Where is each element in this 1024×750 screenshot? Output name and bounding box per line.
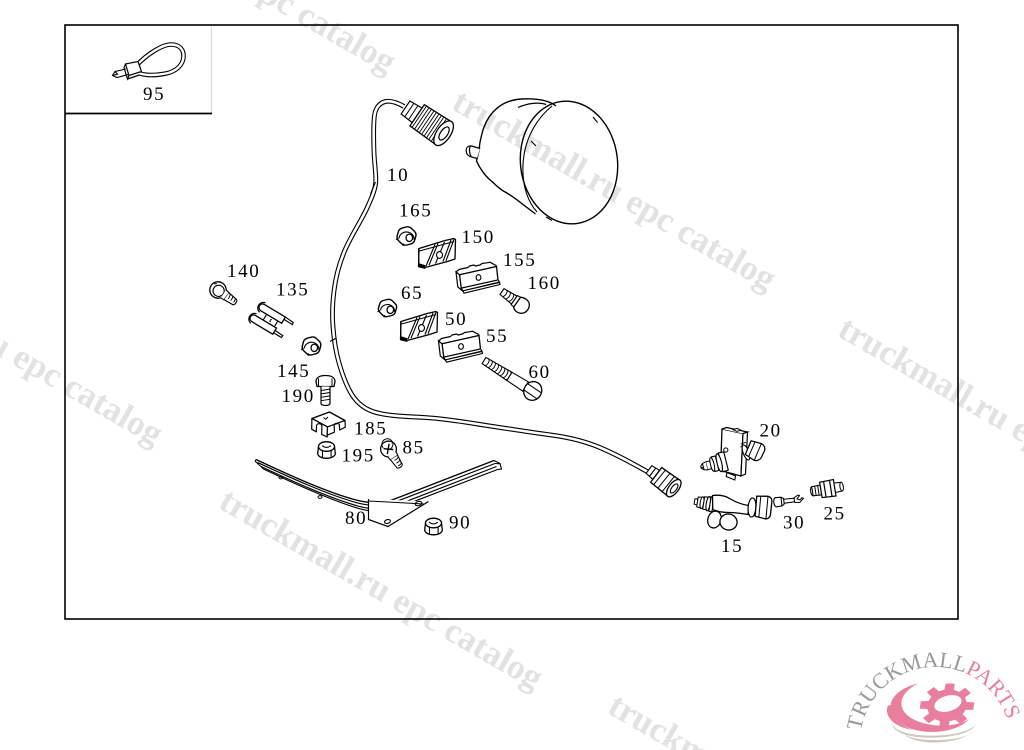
svg-text:160: 160 xyxy=(528,273,561,294)
svg-text:140: 140 xyxy=(227,261,260,282)
svg-text:155: 155 xyxy=(503,250,536,271)
svg-text:80: 80 xyxy=(345,508,367,529)
svg-text:95: 95 xyxy=(143,84,165,105)
svg-text:55: 55 xyxy=(486,326,508,347)
svg-text:150: 150 xyxy=(462,227,495,248)
svg-text:165: 165 xyxy=(399,201,432,222)
svg-text:60: 60 xyxy=(529,362,551,383)
svg-text:65: 65 xyxy=(401,283,423,304)
svg-text:195: 195 xyxy=(342,446,375,467)
svg-text:10: 10 xyxy=(387,165,409,186)
svg-text:90: 90 xyxy=(449,513,471,534)
svg-text:185: 185 xyxy=(354,419,387,440)
svg-text:85: 85 xyxy=(403,438,425,459)
svg-text:20: 20 xyxy=(760,421,782,442)
svg-text:145: 145 xyxy=(277,361,310,382)
svg-text:135: 135 xyxy=(276,280,309,301)
svg-text:50: 50 xyxy=(445,309,467,330)
svg-text:30: 30 xyxy=(783,513,805,534)
svg-text:15: 15 xyxy=(721,536,743,557)
svg-text:190: 190 xyxy=(282,386,315,407)
svg-text:25: 25 xyxy=(824,504,846,525)
